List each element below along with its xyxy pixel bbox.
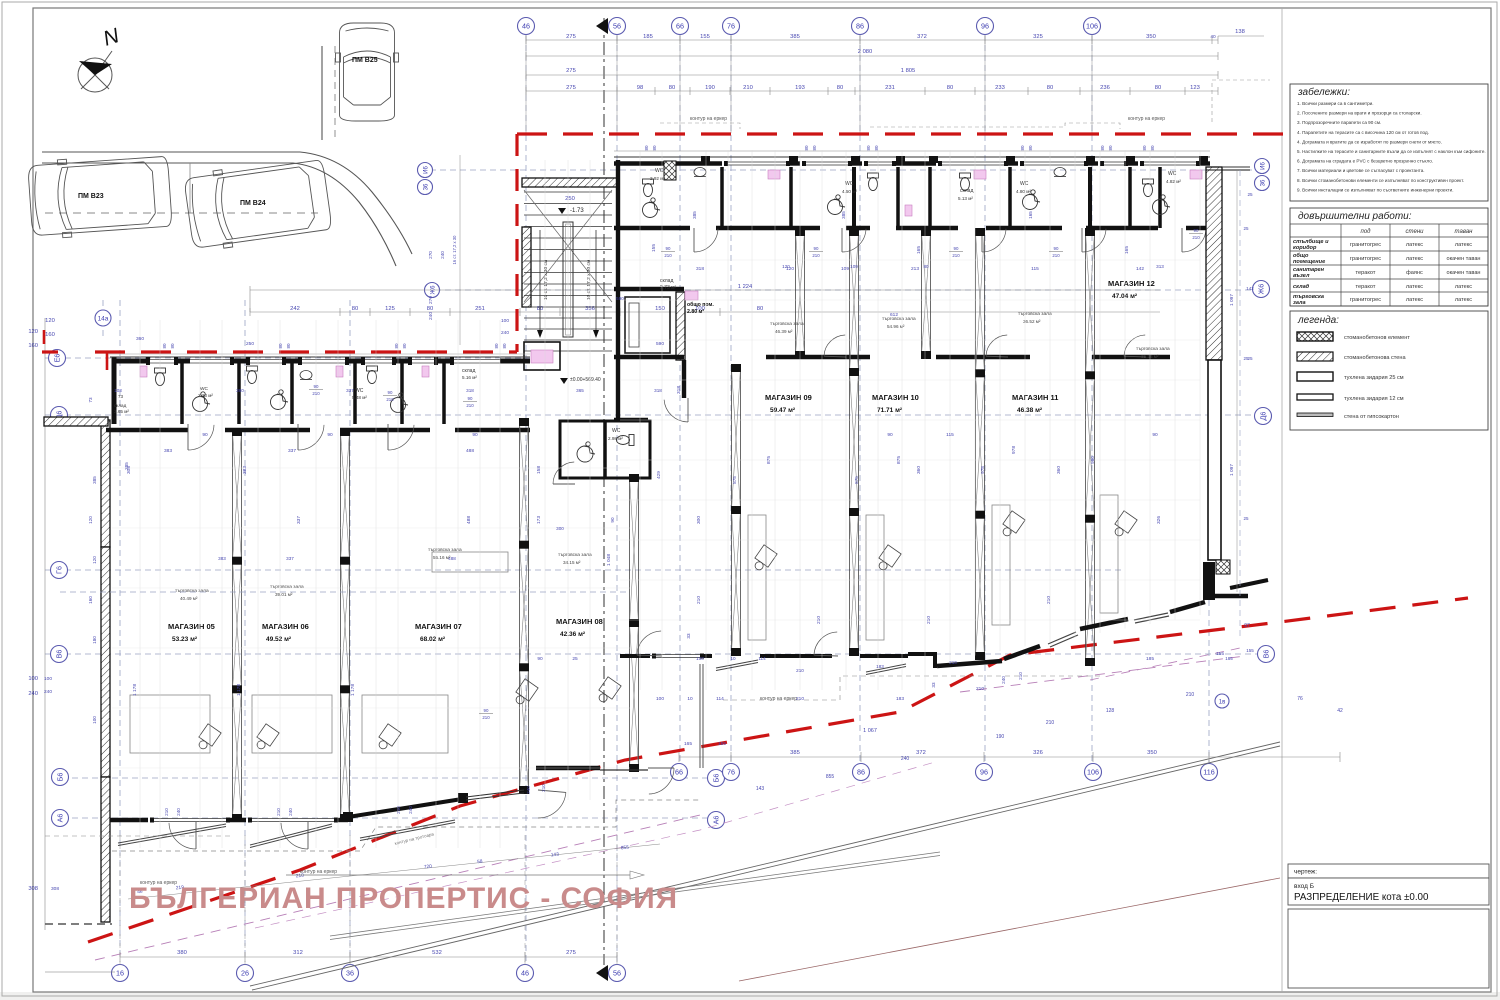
svg-text:210: 210 xyxy=(1046,596,1052,604)
svg-text:240: 240 xyxy=(44,689,52,695)
svg-text:160: 160 xyxy=(45,332,55,338)
svg-text:И6: И6 xyxy=(1261,162,1267,170)
svg-text:вход Б: вход Б xyxy=(1294,883,1314,890)
svg-text:337: 337 xyxy=(286,556,294,561)
svg-text:25: 25 xyxy=(1243,516,1249,521)
svg-text:855: 855 xyxy=(621,845,630,852)
svg-text:латекс: латекс xyxy=(1455,297,1472,303)
svg-text:116: 116 xyxy=(1203,768,1214,777)
svg-text:80: 80 xyxy=(1028,145,1033,151)
svg-text:90: 90 xyxy=(472,432,478,438)
svg-text:легенда:: легенда: xyxy=(1297,315,1339,326)
svg-text:210: 210 xyxy=(1046,720,1055,726)
svg-text:80: 80 xyxy=(923,264,929,269)
svg-text:173: 173 xyxy=(536,516,542,524)
svg-text:100: 100 xyxy=(44,676,52,682)
svg-text:183: 183 xyxy=(896,696,904,702)
svg-text:106: 106 xyxy=(1087,768,1099,777)
svg-text:80: 80 xyxy=(874,145,879,151)
svg-text:1 178: 1 178 xyxy=(350,684,356,696)
svg-text:1 178: 1 178 xyxy=(132,684,138,696)
svg-text:56: 56 xyxy=(613,22,621,31)
svg-text:6. Дограмата на сградата е PVC: 6. Дограмата на сградата е PVC с безцвет… xyxy=(1297,159,1433,164)
svg-text:90: 90 xyxy=(202,432,208,438)
svg-text:360: 360 xyxy=(236,388,244,393)
svg-text:590: 590 xyxy=(616,296,624,301)
svg-text:165: 165 xyxy=(916,246,922,254)
svg-text:26: 26 xyxy=(241,969,249,978)
svg-text:39.01 м²: 39.01 м² xyxy=(275,592,293,597)
svg-text:МАГАЗИН 09: МАГАЗИН 09 xyxy=(765,393,812,402)
svg-text:210: 210 xyxy=(466,403,474,408)
svg-text:318: 318 xyxy=(676,386,682,394)
svg-text:36: 36 xyxy=(424,183,430,190)
svg-text:90: 90 xyxy=(814,246,819,251)
svg-text:латекс: латекс xyxy=(1455,284,1472,290)
svg-text:160: 160 xyxy=(88,596,93,604)
svg-text:46.39 м²: 46.39 м² xyxy=(775,329,793,334)
svg-text:80: 80 xyxy=(804,145,809,151)
svg-text:210: 210 xyxy=(976,686,984,692)
svg-text:А6: А6 xyxy=(56,814,65,823)
svg-text:855: 855 xyxy=(826,774,835,780)
svg-text:25: 25 xyxy=(572,656,578,662)
svg-text:МАГАЗИН 06: МАГАЗИН 06 xyxy=(262,622,309,631)
svg-text:90: 90 xyxy=(314,384,319,389)
svg-text:търговска зала: търговска зала xyxy=(558,553,592,558)
svg-text:275: 275 xyxy=(566,68,576,74)
svg-text:210: 210 xyxy=(386,397,394,402)
svg-text:250: 250 xyxy=(565,196,575,202)
svg-text:300: 300 xyxy=(556,526,564,531)
svg-text:120: 120 xyxy=(28,329,38,335)
svg-text:372: 372 xyxy=(917,34,927,40)
svg-text:100: 100 xyxy=(92,716,97,724)
svg-text:350: 350 xyxy=(1146,34,1156,40)
svg-text:окачен таван: окачен таван xyxy=(1446,256,1480,262)
svg-text:429: 429 xyxy=(656,471,661,479)
svg-text:58: 58 xyxy=(477,859,483,866)
svg-text:155: 155 xyxy=(1246,648,1254,653)
svg-text:помещение: помещение xyxy=(1293,259,1325,265)
svg-text:34.15 м²: 34.15 м² xyxy=(563,560,581,565)
svg-text:10: 10 xyxy=(687,696,693,702)
svg-text:80: 80 xyxy=(757,306,763,312)
svg-text:80: 80 xyxy=(652,145,657,151)
svg-text:гранитогрес: гранитогрес xyxy=(1350,242,1381,248)
svg-text:337: 337 xyxy=(288,448,296,454)
svg-text:1в: 1в xyxy=(1219,700,1226,706)
svg-text:488: 488 xyxy=(448,556,456,561)
svg-text:190: 190 xyxy=(705,85,715,91)
svg-text:WC: WC xyxy=(612,428,621,434)
svg-text:търговска зала: търговска зала xyxy=(882,317,916,322)
svg-text:54.96 м²: 54.96 м² xyxy=(887,324,905,329)
svg-text:68.02 м²: 68.02 м² xyxy=(420,636,446,643)
svg-text:90: 90 xyxy=(887,432,893,438)
svg-text:242: 242 xyxy=(290,306,300,312)
svg-text:86: 86 xyxy=(857,768,865,777)
svg-text:142: 142 xyxy=(1136,266,1144,272)
svg-text:385: 385 xyxy=(692,211,697,219)
svg-text:66: 66 xyxy=(676,22,684,31)
svg-text:БЪЛГЕРИАН ПРОПЕРТИС - СОФИЯ: БЪЛГЕРИАН ПРОПЕРТИС - СОФИЯ xyxy=(129,882,678,915)
svg-text:90: 90 xyxy=(468,396,473,401)
svg-text:40: 40 xyxy=(1210,34,1216,40)
svg-text:склад: склад xyxy=(462,368,475,374)
svg-text:WC: WC xyxy=(355,388,364,394)
svg-text:търговска зала: търговска зала xyxy=(1136,347,1170,352)
svg-text:Г6: Г6 xyxy=(55,566,64,574)
svg-text:80: 80 xyxy=(1020,145,1025,151)
svg-text:16: 16 xyxy=(116,969,124,978)
svg-text:80: 80 xyxy=(278,343,283,349)
svg-text:155: 155 xyxy=(700,34,710,40)
svg-text:80: 80 xyxy=(644,145,649,151)
svg-text:таван: таван xyxy=(1455,229,1474,235)
svg-text:контур на еркер: контур на еркер xyxy=(300,869,337,875)
svg-text:1 048: 1 048 xyxy=(606,554,612,566)
svg-text:210: 210 xyxy=(1018,672,1023,680)
svg-text:300: 300 xyxy=(696,516,702,524)
svg-text:326: 326 xyxy=(1033,750,1043,756)
svg-text:тухлена зидария 25 см: тухлена зидария 25 см xyxy=(1344,375,1404,381)
svg-text:1 224: 1 224 xyxy=(738,284,753,290)
svg-text:МАГАЗИН 08: МАГАЗИН 08 xyxy=(556,617,603,626)
svg-text:318: 318 xyxy=(696,266,704,272)
svg-text:100: 100 xyxy=(696,656,704,661)
svg-text:76: 76 xyxy=(1297,696,1303,702)
svg-text:90: 90 xyxy=(537,656,543,662)
svg-text:143: 143 xyxy=(756,786,765,792)
svg-text:1 178: 1 178 xyxy=(236,684,242,696)
svg-text:търговска зала: търговска зала xyxy=(270,585,304,590)
svg-text:склад: склад xyxy=(1293,284,1310,290)
svg-text:120: 120 xyxy=(92,556,97,564)
svg-text:325: 325 xyxy=(1033,34,1043,40)
svg-text:590: 590 xyxy=(656,341,664,347)
svg-text:240: 240 xyxy=(408,806,413,814)
svg-text:125: 125 xyxy=(385,306,395,312)
svg-text:МАГАЗИН 12: МАГАЗИН 12 xyxy=(1108,279,1155,288)
svg-text:53.23 м²: 53.23 м² xyxy=(172,636,198,643)
svg-text:165: 165 xyxy=(1124,246,1130,254)
svg-text:80: 80 xyxy=(669,85,675,91)
svg-text:2.73 м²: 2.73 м² xyxy=(660,285,677,291)
svg-text:10: 10 xyxy=(730,656,736,661)
svg-text:10 ст. 17,2 х 30 см: 10 ст. 17,2 х 30 см xyxy=(586,260,592,300)
svg-text:114: 114 xyxy=(716,696,724,702)
svg-text:80: 80 xyxy=(1155,85,1161,91)
svg-text:210: 210 xyxy=(796,668,804,673)
svg-text:стоманобетонов елемент: стоманобетонов елемент xyxy=(1344,335,1410,341)
svg-text:80: 80 xyxy=(402,343,407,349)
svg-text:2.92 м²: 2.92 м² xyxy=(650,176,665,181)
svg-text:80: 80 xyxy=(394,343,399,349)
svg-text:100: 100 xyxy=(501,318,509,324)
svg-text:довършителни работи:: довършителни работи: xyxy=(1298,210,1412,222)
svg-text:4.82 м²: 4.82 м² xyxy=(1166,179,1181,184)
svg-text:1 067: 1 067 xyxy=(863,728,877,734)
svg-text:2. Посочените размери на врати: 2. Посочените размери на врати и прозорц… xyxy=(1297,111,1422,116)
svg-text:165: 165 xyxy=(684,741,692,747)
svg-text:185: 185 xyxy=(1225,656,1233,661)
svg-text:80: 80 xyxy=(286,343,291,349)
svg-text:2.65 м²: 2.65 м² xyxy=(114,409,129,414)
svg-text:120: 120 xyxy=(45,318,55,324)
svg-text:WC: WC xyxy=(1168,171,1177,177)
svg-text:875: 875 xyxy=(732,476,737,484)
svg-text:128: 128 xyxy=(1106,708,1115,714)
svg-text:251: 251 xyxy=(475,306,485,312)
svg-text:875: 875 xyxy=(854,476,859,484)
svg-text:158: 158 xyxy=(536,466,542,474)
svg-text:318: 318 xyxy=(466,388,474,393)
svg-text:360: 360 xyxy=(916,466,922,474)
svg-text:210: 210 xyxy=(664,253,672,258)
svg-text:532: 532 xyxy=(432,950,442,956)
svg-text:4. Парапетите на терасите са с: 4. Парапетите на терасите са с височина … xyxy=(1297,130,1429,135)
svg-text:36: 36 xyxy=(346,969,354,978)
svg-text:стълбище и: стълбище и xyxy=(1293,238,1329,245)
svg-text:14а: 14а xyxy=(98,316,109,323)
svg-text:стоманобетонова стена: стоманобетонова стена xyxy=(1344,355,1407,361)
svg-text:383: 383 xyxy=(164,448,172,454)
svg-text:155: 155 xyxy=(718,741,726,747)
svg-text:86: 86 xyxy=(856,22,864,31)
svg-text:380: 380 xyxy=(177,950,187,956)
svg-text:97: 97 xyxy=(1244,623,1250,629)
svg-text:49.52 м²: 49.52 м² xyxy=(266,636,292,643)
svg-text:106: 106 xyxy=(1086,22,1098,31)
svg-text:РАЗПРЕДЕЛЕНИЕ кота ±0.00: РАЗПРЕДЕЛЕНИЕ кота ±0.00 xyxy=(1294,892,1429,903)
svg-text:2.80 м²: 2.80 м² xyxy=(687,309,704,315)
svg-text:142: 142 xyxy=(1246,286,1254,291)
svg-text:76: 76 xyxy=(727,768,735,777)
svg-text:231: 231 xyxy=(885,85,895,91)
svg-text:25: 25 xyxy=(1243,226,1249,231)
svg-text:1 097: 1 097 xyxy=(1229,464,1235,476)
svg-text:240: 240 xyxy=(1001,676,1006,684)
svg-text:WC: WC xyxy=(655,168,664,174)
svg-text:25: 25 xyxy=(1247,192,1253,197)
svg-text:165: 165 xyxy=(1028,211,1033,219)
svg-text:3. Подпрозоречните парапети са: 3. Подпрозоречните парапети са 90 см. xyxy=(1297,120,1381,125)
svg-text:978: 978 xyxy=(1011,446,1017,454)
svg-text:7. Всички материали и цветове: 7. Всички материали и цветове се съгласу… xyxy=(1297,168,1425,173)
svg-text:488: 488 xyxy=(466,448,474,454)
svg-text:275: 275 xyxy=(566,950,576,956)
svg-text:90: 90 xyxy=(1152,432,1158,438)
svg-text:търговска зала: търговска зала xyxy=(1018,312,1052,317)
svg-text:155: 155 xyxy=(651,244,657,252)
svg-text:WC: WC xyxy=(845,181,854,187)
svg-text:240: 240 xyxy=(288,808,293,816)
svg-text:5.13 м²: 5.13 м² xyxy=(958,196,973,201)
svg-text:114: 114 xyxy=(758,656,766,661)
svg-text:Е6: Е6 xyxy=(53,354,62,363)
svg-text:1 805: 1 805 xyxy=(901,68,916,74)
svg-text:33: 33 xyxy=(686,633,691,639)
svg-text:1 097: 1 097 xyxy=(1229,294,1235,306)
svg-text:WC: WC xyxy=(200,386,209,392)
svg-text:210: 210 xyxy=(164,808,169,816)
svg-text:150: 150 xyxy=(655,306,665,312)
svg-text:233: 233 xyxy=(995,85,1005,91)
svg-text:80: 80 xyxy=(352,306,358,312)
svg-text:80: 80 xyxy=(866,145,871,151)
svg-text:210: 210 xyxy=(952,253,960,258)
svg-text:36.52 м²: 36.52 м² xyxy=(1023,319,1041,324)
svg-text:90: 90 xyxy=(954,246,959,251)
svg-text:латекс: латекс xyxy=(1406,256,1423,262)
svg-text:240: 240 xyxy=(28,691,38,697)
svg-text:80: 80 xyxy=(1100,145,1105,151)
svg-text:4.50 м²: 4.50 м² xyxy=(842,189,857,194)
svg-text:общо пом.: общо пом. xyxy=(687,301,714,308)
svg-text:383: 383 xyxy=(218,556,226,561)
svg-text:42.36 м²: 42.36 м² xyxy=(560,631,586,638)
svg-text:забележки:: забележки: xyxy=(1297,86,1350,98)
svg-text:окачен таван: окачен таван xyxy=(1446,270,1480,276)
svg-text:210: 210 xyxy=(541,784,546,792)
svg-text:90: 90 xyxy=(1194,228,1199,233)
svg-text:720: 720 xyxy=(424,864,433,871)
svg-text:210: 210 xyxy=(743,85,753,91)
svg-text:155: 155 xyxy=(1216,651,1224,657)
svg-text:115: 115 xyxy=(1031,266,1039,272)
svg-text:латекс: латекс xyxy=(1406,242,1423,248)
svg-text:385: 385 xyxy=(124,462,129,470)
svg-text:80: 80 xyxy=(812,145,817,151)
svg-text:МАГАЗИН 11: МАГАЗИН 11 xyxy=(1012,393,1058,402)
svg-text:240: 240 xyxy=(501,330,509,336)
svg-text:337: 337 xyxy=(296,516,302,524)
svg-text:120: 120 xyxy=(88,516,93,524)
svg-text:склад: склад xyxy=(114,403,127,408)
svg-text:40.49 м²: 40.49 м² xyxy=(180,596,198,601)
svg-text:385: 385 xyxy=(92,476,97,484)
svg-text:210: 210 xyxy=(1192,235,1200,240)
svg-text:търговска зала: търговска зала xyxy=(175,589,209,594)
svg-text:80: 80 xyxy=(1142,145,1147,151)
svg-text:латекс: латекс xyxy=(1455,242,1472,248)
svg-text:Ж6: Ж6 xyxy=(1257,284,1266,295)
svg-text:59.47 м²: 59.47 м² xyxy=(770,407,796,414)
svg-text:80: 80 xyxy=(837,85,843,91)
svg-text:240: 240 xyxy=(901,756,910,762)
svg-text:8. Всички стоманобетонови елем: 8. Всички стоманобетонови елементи се из… xyxy=(1297,178,1464,183)
svg-text:240: 240 xyxy=(440,251,445,259)
svg-text:488: 488 xyxy=(466,516,472,524)
svg-text:210: 210 xyxy=(396,806,401,814)
svg-text:гранитогрес: гранитогрес xyxy=(1350,297,1381,303)
svg-text:980: 980 xyxy=(1090,456,1095,464)
svg-text:350: 350 xyxy=(1147,750,1157,756)
svg-text:33: 33 xyxy=(931,682,936,688)
svg-text:5. Настилките на терасите и са: 5. Настилките на терасите и санитарните … xyxy=(1297,149,1486,154)
svg-text:коридор: коридор xyxy=(1293,245,1317,251)
svg-text:210: 210 xyxy=(482,715,490,720)
svg-text:210: 210 xyxy=(276,808,281,816)
svg-text:4. Дограмата и вратите да се и: 4. Дограмата и вратите да се изработят п… xyxy=(1297,139,1442,144)
svg-text:Б6: Б6 xyxy=(712,774,721,783)
svg-text:под: под xyxy=(1361,229,1372,235)
svg-text:337: 337 xyxy=(346,388,354,393)
svg-text:360: 360 xyxy=(1056,466,1062,474)
svg-text:138: 138 xyxy=(1235,29,1245,35)
svg-text:латекс: латекс xyxy=(1406,297,1423,303)
svg-text:312: 312 xyxy=(293,950,303,956)
svg-text:2.98 м²: 2.98 м² xyxy=(608,436,623,441)
svg-text:100: 100 xyxy=(28,676,38,682)
svg-text:360: 360 xyxy=(136,336,144,342)
svg-text:308: 308 xyxy=(28,886,38,892)
svg-text:80: 80 xyxy=(494,343,499,349)
svg-text:270: 270 xyxy=(428,296,434,304)
svg-text:250: 250 xyxy=(246,341,254,347)
svg-text:±0.00+569.40: ±0.00+569.40 xyxy=(570,377,601,383)
svg-text:875: 875 xyxy=(896,456,902,464)
svg-text:875: 875 xyxy=(766,456,772,464)
svg-text:теракот: теракот xyxy=(1356,284,1376,290)
svg-text:76: 76 xyxy=(727,22,735,31)
svg-text:5.48 м²: 5.48 м² xyxy=(352,395,367,400)
svg-text:185: 185 xyxy=(643,34,653,40)
svg-text:90: 90 xyxy=(610,517,615,523)
svg-text:гранитогрес: гранитогрес xyxy=(1350,256,1381,262)
svg-text:103: 103 xyxy=(114,388,122,393)
svg-text:80: 80 xyxy=(1047,85,1053,91)
svg-text:42: 42 xyxy=(1337,708,1343,714)
svg-text:73: 73 xyxy=(118,394,124,399)
svg-text:115: 115 xyxy=(946,432,954,438)
svg-text:80: 80 xyxy=(162,343,167,349)
svg-text:теракот: теракот xyxy=(1356,270,1376,276)
svg-text:46: 46 xyxy=(522,22,530,31)
svg-text:313: 313 xyxy=(1156,264,1164,269)
svg-text:210: 210 xyxy=(1052,253,1060,258)
svg-text:56: 56 xyxy=(613,969,621,978)
svg-text:143: 143 xyxy=(551,852,560,859)
svg-text:318: 318 xyxy=(654,388,662,393)
svg-text:120: 120 xyxy=(782,264,790,269)
svg-text:383: 383 xyxy=(242,466,248,474)
svg-text:ПМ В25: ПМ В25 xyxy=(352,57,378,64)
svg-text:185: 185 xyxy=(1146,656,1154,662)
svg-text:тухлена зидария 12 см: тухлена зидария 12 см xyxy=(1344,396,1404,402)
svg-text:латекс: латекс xyxy=(1406,284,1423,290)
svg-text:80: 80 xyxy=(427,306,433,312)
svg-text:общо: общо xyxy=(1293,252,1309,259)
svg-text:193: 193 xyxy=(795,85,805,91)
svg-text:190: 190 xyxy=(996,734,1005,740)
svg-text:365: 365 xyxy=(576,388,584,393)
svg-text:стени: стени xyxy=(1406,229,1425,235)
svg-text:1. Всички размери са в сантиме: 1. Всички размери са в сантиметри. xyxy=(1297,101,1374,106)
svg-text:978: 978 xyxy=(980,466,985,474)
svg-text:385: 385 xyxy=(790,34,800,40)
svg-text:ПМ В23: ПМ В23 xyxy=(78,193,104,200)
svg-text:385: 385 xyxy=(841,211,846,219)
svg-text:270: 270 xyxy=(428,251,433,259)
svg-text:96: 96 xyxy=(981,22,989,31)
svg-text:16 ст. 17,2 х 30: 16 ст. 17,2 х 30 xyxy=(452,235,457,265)
svg-text:90: 90 xyxy=(484,708,489,713)
svg-text:160: 160 xyxy=(28,343,38,349)
svg-text:В6: В6 xyxy=(1262,650,1271,659)
svg-text:240: 240 xyxy=(526,786,531,794)
